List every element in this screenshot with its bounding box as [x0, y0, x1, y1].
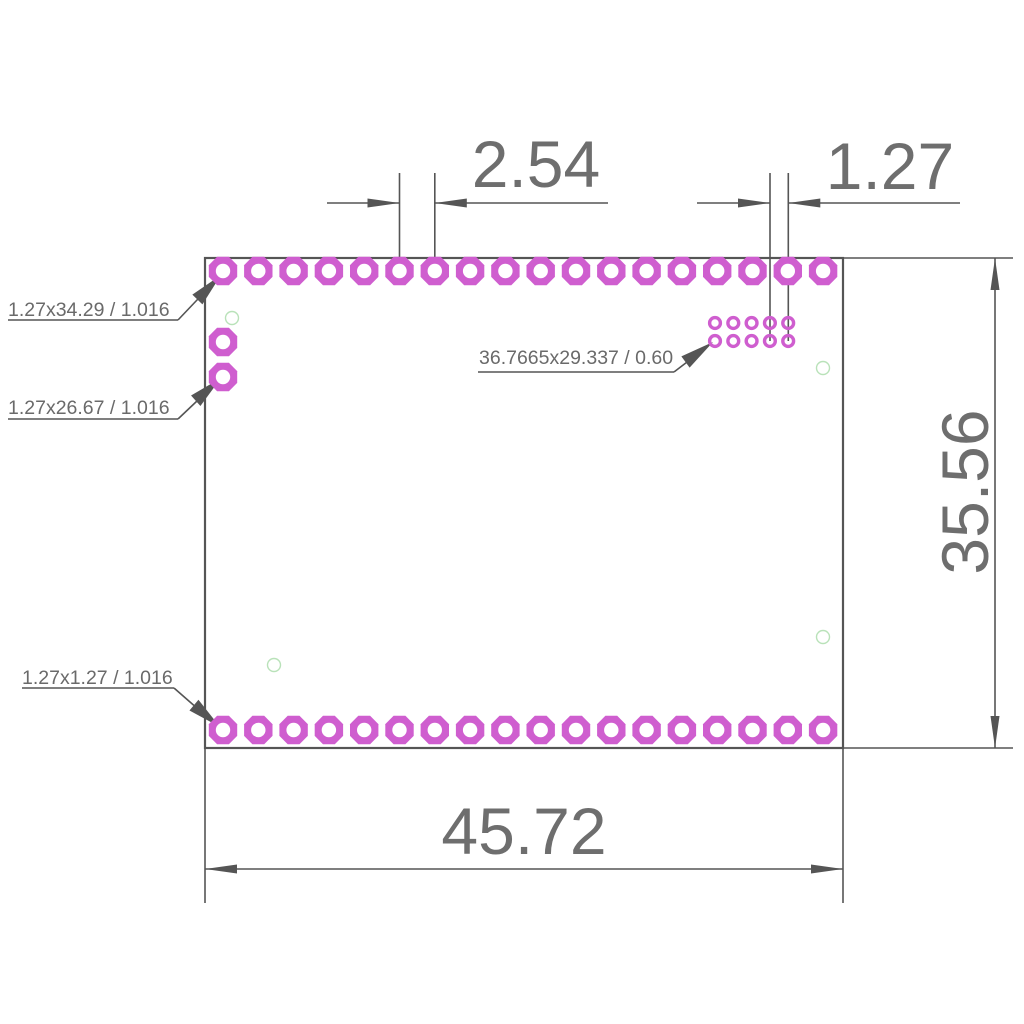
- pad-drill-hole: [639, 264, 653, 278]
- arrowhead: [205, 865, 237, 874]
- pad-drill-hole: [322, 723, 336, 737]
- pad-drill-hole: [322, 264, 336, 278]
- pad-drill-hole: [816, 723, 830, 737]
- note-pad-bottom-left: 1.27x1.27 / 1.016: [22, 667, 173, 689]
- smd-grid-pad: [710, 318, 721, 329]
- pad-drill-hole: [745, 723, 759, 737]
- pad-drill-hole: [745, 264, 759, 278]
- note-smd-grid: 36.7665x29.337 / 0.60: [479, 347, 673, 369]
- smd-grid-pad: [746, 336, 757, 347]
- locating-hole: [268, 659, 281, 672]
- pad-drill-hole: [675, 264, 689, 278]
- through-hole-pad-rows: [209, 257, 838, 744]
- pad-drill-hole: [639, 723, 653, 737]
- pad-drill-hole: [710, 264, 724, 278]
- arrowhead: [991, 258, 1000, 290]
- pad-drill-hole: [251, 723, 265, 737]
- pad-drill-hole: [286, 264, 300, 278]
- arrowhead: [738, 199, 770, 208]
- pad-drill-hole: [428, 264, 442, 278]
- dimension-arrows: [189, 199, 999, 874]
- dimension-value-pitch-1-27: 1.27: [826, 129, 954, 203]
- pad-drill-hole: [216, 370, 230, 384]
- arrowhead: [681, 342, 713, 368]
- pad-drill-hole: [569, 723, 583, 737]
- pad-drill-hole: [816, 264, 830, 278]
- pad-drill-hole: [498, 723, 512, 737]
- pad-drill-hole: [392, 723, 406, 737]
- note-pad-left-lower: 1.27x26.67 / 1.016: [8, 397, 170, 419]
- pad-drill-hole: [534, 723, 548, 737]
- arrowhead: [811, 865, 843, 874]
- pcb-footprint-drawing: 2.54 1.27 45.72 35.56 1.27x34.29 / 1.016…: [0, 0, 1024, 1024]
- pad-drill-hole: [392, 264, 406, 278]
- pad-drill-hole: [710, 723, 724, 737]
- pad-drill-hole: [675, 723, 689, 737]
- pad-drill-hole: [781, 264, 795, 278]
- arrowhead: [991, 716, 1000, 748]
- pad-drill-hole: [251, 264, 265, 278]
- pad-drill-hole: [216, 264, 230, 278]
- board-outline: [205, 258, 843, 748]
- note-pad-top-left: 1.27x34.29 / 1.016: [8, 299, 170, 321]
- pad-drill-hole: [216, 723, 230, 737]
- pad-drill-hole: [569, 264, 583, 278]
- arrowhead: [368, 199, 400, 208]
- pad-drill-hole: [604, 723, 618, 737]
- pad-drill-hole: [357, 264, 371, 278]
- dimension-value-pitch-2-54: 2.54: [472, 127, 600, 201]
- pad-drill-hole: [498, 264, 512, 278]
- pad-drill-hole: [781, 723, 795, 737]
- board-edge: [205, 258, 843, 748]
- pad-drill-hole: [463, 723, 477, 737]
- pad-drill-hole: [428, 723, 442, 737]
- pad-drill-hole: [534, 264, 548, 278]
- arrowhead: [435, 199, 467, 208]
- smd-pad-grid: [710, 318, 794, 347]
- pad-drill-hole: [604, 264, 618, 278]
- pad-drill-hole: [286, 723, 300, 737]
- smd-grid-pad: [728, 336, 739, 347]
- dimension-value-board-width: 45.72: [441, 794, 606, 868]
- smd-grid-pad: [728, 318, 739, 329]
- locating-hole: [226, 312, 239, 325]
- pad-drill-hole: [357, 723, 371, 737]
- locating-hole: [817, 631, 830, 644]
- arrowhead: [788, 199, 820, 208]
- pad-drill-hole: [463, 264, 477, 278]
- pad-drill-hole: [216, 335, 230, 349]
- smd-grid-pad: [710, 336, 721, 347]
- smd-grid-pad: [746, 318, 757, 329]
- dimension-value-board-height: 35.56: [928, 409, 1002, 574]
- locating-hole: [817, 362, 830, 375]
